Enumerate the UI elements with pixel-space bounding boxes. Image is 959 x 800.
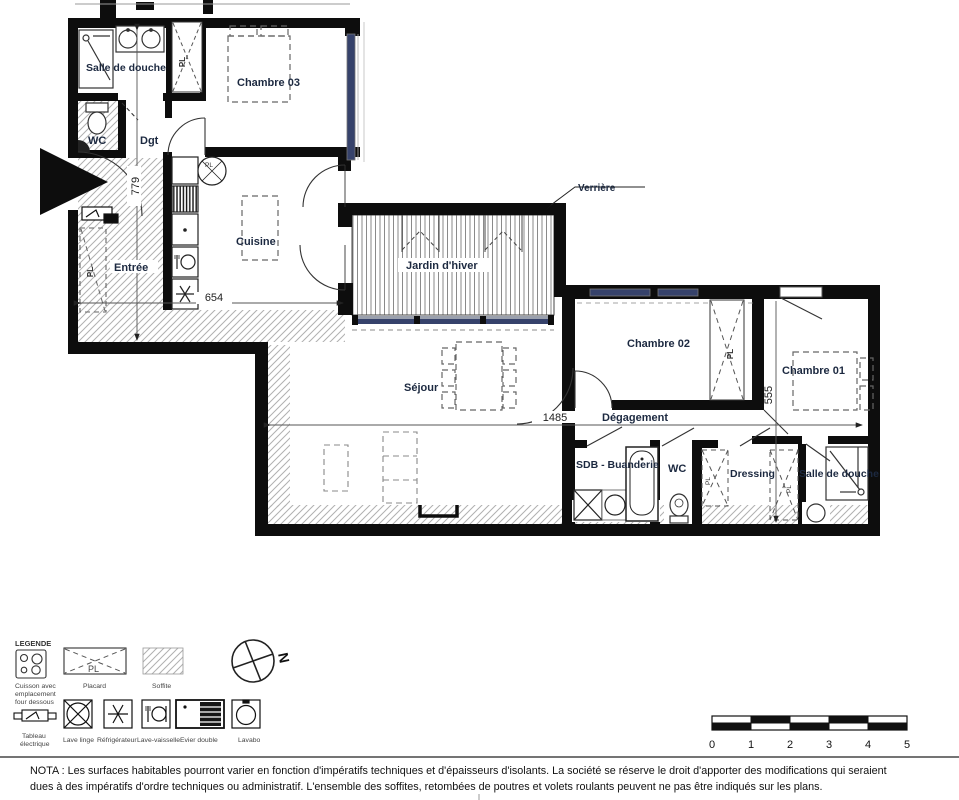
nota-block: NOTA : Les surfaces habitables pourront … [0,757,959,800]
scale-tick-2: 2 [787,739,793,751]
double-sink-symbol [116,26,164,52]
room-label-salle-de-douche-1: Salle de douche [86,62,166,74]
chambre02-door-arc [575,371,612,408]
washing-machine-icon [64,700,92,728]
nota-line-2: dues à des impératifs d'ordre techniques… [30,781,823,793]
scale-bar: 0 1 2 3 4 5 [709,716,910,751]
fridge-symbol [172,279,198,309]
room-label-dgt: Dgt [140,135,159,147]
kitchen-island-symbol [242,196,278,260]
legend-evier-double-label: Evier double [180,737,218,744]
floor-plan-page: 779 654 1485 555 Verrière Salle de douch… [0,0,959,800]
soffite-icon [143,648,183,674]
compass: N [232,640,293,682]
washbasin-sdb-symbol [602,490,628,520]
scale-tick-3: 3 [826,739,832,751]
chambre01-top-door-leaf [781,298,822,319]
legend-lave-vaisselle-label: Lave-vaisselle [137,737,180,744]
legend: LEGENDE Cuisson avec emplacement four de… [14,639,261,748]
toilet-2-symbol [670,494,688,523]
legend-tableau-line2: électrique [20,741,50,748]
fridge-icon [104,700,132,728]
north-label: N [275,651,293,664]
sdb-door-leaf [587,427,622,446]
room-label-dressing: Dressing [730,468,775,480]
scale-tick-0: 0 [709,739,715,751]
floor-plan-svg: 779 654 1485 555 Verrière Salle de douch… [0,0,959,800]
legend-soffite-label: Soffite [152,683,171,690]
dishwasher-symbol [172,247,198,277]
legend-lave-linge-label: Lave linge [63,737,94,744]
room-label-cuisine: Cuisine [236,236,276,248]
room-label-sdb-buanderie: SDB - Buanderie [576,459,659,471]
scale-tick-1: 1 [748,739,754,751]
room-label-wc-1: WC [88,135,106,147]
dim-654: 654 [205,292,223,304]
bed-chambre01-symbol [793,352,873,410]
pl-label-kitchen: PL [205,162,213,169]
legend-cuisson-line2: emplacement [15,691,56,698]
scale-tick-4: 4 [865,739,871,751]
room-label-salle-de-douche-2: Salle de douche [799,468,879,480]
jardin-hiver-deck [352,215,554,330]
legend-tableau-line1: Tableau [22,733,46,740]
wc2-door-leaf [662,428,694,446]
room-label-entree: Entrée [114,262,148,274]
room-label-chambre-02: Chambre 02 [627,338,690,350]
legend-cuisson-line1: Cuisson avec [15,683,56,690]
washbasin-sdd2-symbol [807,504,825,522]
room-label-jardin-hiver: Jardin d'hiver [406,260,478,272]
room-label-wc-2: WC [668,463,686,475]
dishwasher-icon [142,700,170,728]
verriere-label: Verrière [578,183,616,194]
scale-tick-5: 5 [904,739,910,751]
sofa-symbol [324,432,417,503]
room-label-degagement: Dégagement [602,412,668,424]
shower-1-symbol [79,30,113,88]
legend-cuisson-line3: four dessous [15,699,55,706]
room-label-sejour: Séjour [404,382,439,394]
pl-label-entree: PL [86,267,95,277]
washbasin-icon [232,700,260,728]
washing-machine-symbol [574,490,602,520]
room-label-chambre-03: Chambre 03 [237,77,300,89]
double-sink-icon [176,700,224,728]
kitchen-appliances [172,157,226,309]
sink-drainer-symbol [172,186,198,212]
placard-top-symbol [172,22,202,92]
chambre03-door-arc [168,118,205,155]
legend-placard-symbol: PL [88,664,99,674]
nota-line-1: NOTA : Les surfaces habitables pourront … [30,765,887,777]
bed-chambre03-symbol [228,26,290,102]
room-label-chambre-01: Chambre 01 [782,365,845,377]
dining-table-symbol [442,342,516,410]
pl-label-dressing-1: PL [705,477,712,485]
electrical-panel-icon [14,710,56,721]
dim-555: 555 [763,386,775,404]
placard-icon: PL [64,648,126,674]
legend-refrigerateur-label: Réfrigérateur [97,737,137,744]
cooktop-icon [16,650,46,678]
pl-label-chambre02: PL [726,349,735,359]
pl-label-dressing-2: PL [786,485,793,493]
pl-label-top-closet: PL [178,57,187,67]
legend-lavabo-label: Lavabo [238,737,261,744]
dim-1485: 1485 [543,412,567,424]
dim-779: 779 [130,177,142,195]
legend-placard-label: Placard [83,683,106,690]
legend-title: LEGENDE [15,639,51,648]
jardin-door1-arc [303,165,345,207]
